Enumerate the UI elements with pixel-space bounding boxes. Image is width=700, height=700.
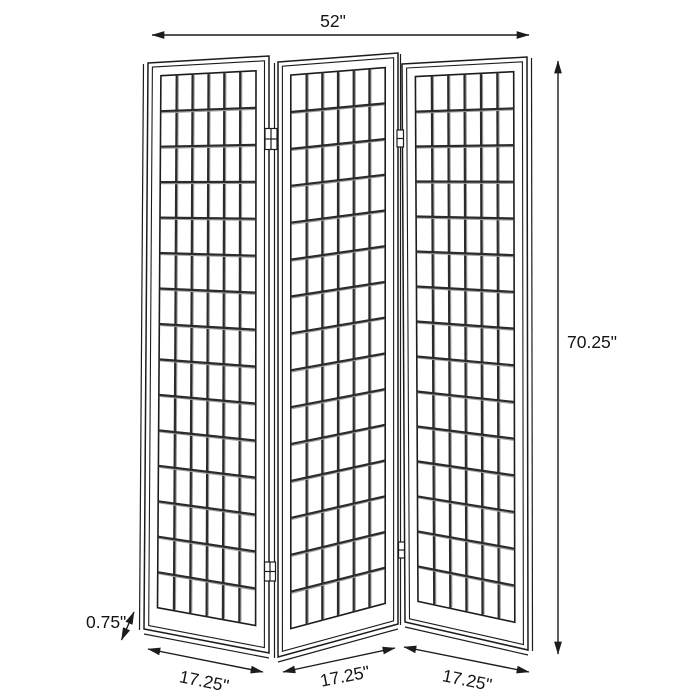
hinge-right-top-icon: [397, 130, 404, 147]
grid-mullion-horizontal: [416, 145, 514, 146]
hinge-left-top-icon: [265, 129, 277, 150]
grid-mullion-vertical: [239, 72, 240, 623]
total-width-label: 52": [320, 11, 346, 31]
hinge-left-bottom-icon: [265, 562, 276, 581]
hinge-right-bottom-icon: [399, 542, 405, 558]
height-label: 70.25": [567, 332, 617, 352]
thickness-label: 0.75": [86, 612, 126, 632]
grid-mullion-vertical: [497, 73, 498, 619]
grid-mullion-horizontal: [160, 218, 256, 219]
grid-mullion-vertical: [223, 73, 224, 620]
room-divider-dimension-diagram: 52" 70.25" 0.75" 17.25" 17.25" 17.25": [0, 0, 700, 700]
diagram-canvas: 52" 70.25" 0.75" 17.25" 17.25" 17.25": [0, 0, 700, 700]
